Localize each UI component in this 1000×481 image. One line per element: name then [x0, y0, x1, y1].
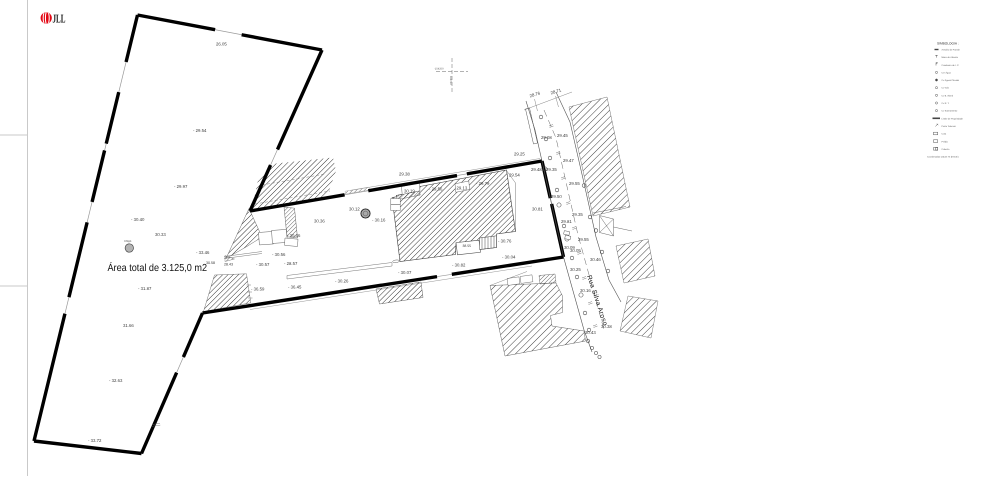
- svg-text:Cv Águas Pluviais: Cv Águas Pluviais: [942, 79, 961, 82]
- svg-text:29.13: 29.13: [457, 186, 468, 191]
- svg-text:- 30.26: - 30.26: [335, 279, 349, 284]
- svg-text:Limite de Propriedade: Limite de Propriedade: [942, 117, 964, 120]
- svg-text:29.35: 29.35: [546, 167, 557, 172]
- svg-text:30.58: 30.58: [206, 261, 215, 265]
- svg-text:30.81: 30.81: [532, 207, 543, 212]
- svg-text:- 30.16: - 30.16: [372, 218, 386, 223]
- svg-text:- 36.59: - 36.59: [251, 287, 265, 292]
- svg-text:-154250: -154250: [434, 68, 444, 71]
- svg-text:29.47: 29.47: [563, 158, 574, 163]
- svg-text:Poço: Poço: [125, 239, 132, 243]
- svg-text:29.48: 29.48: [531, 167, 542, 172]
- svg-text:CV. Água: CV. Água: [942, 71, 952, 74]
- svg-text:- 32.63: - 32.63: [109, 378, 123, 383]
- svg-text:Coberto: Coberto: [942, 148, 951, 151]
- svg-text:- 30.56: - 30.56: [272, 252, 286, 257]
- svg-text:38.55: 38.55: [463, 244, 472, 248]
- svg-text:- 33.46: - 33.46: [196, 250, 210, 255]
- svg-text:30.16: 30.16: [580, 288, 591, 293]
- svg-text:168750: 168750: [449, 76, 452, 85]
- svg-text:30.43: 30.43: [585, 330, 596, 335]
- svg-text:- 36.45: - 36.45: [288, 285, 302, 290]
- svg-text:Coordenadas Datum 73 (IGeoE): Coordenadas Datum 73 (IGeoE): [927, 156, 959, 159]
- svg-text:Candeeiro de I. P.: Candeeiro de I. P.: [942, 64, 960, 67]
- svg-text:31.66: 31.66: [123, 323, 134, 328]
- svg-text:- 30.57: - 30.57: [256, 262, 270, 267]
- svg-text:- 29.97: - 29.97: [174, 184, 188, 189]
- svg-text:- 28.57: - 28.57: [284, 261, 298, 266]
- svg-text:Cota: Cota: [942, 133, 947, 136]
- svg-text:29.54: 29.54: [509, 173, 520, 178]
- svg-text:Cv B. Aberti: Cv B. Aberti: [942, 94, 954, 97]
- svg-text:30.46: 30.46: [590, 257, 601, 262]
- svg-text:30.36: 30.36: [314, 219, 325, 224]
- svg-text:- 30.07: - 30.07: [398, 270, 412, 275]
- svg-text:- 30.46: - 30.46: [287, 233, 301, 238]
- svg-text:30.05: 30.05: [570, 248, 581, 253]
- svg-text:29.81: 29.81: [561, 219, 572, 224]
- svg-text:Armário de Parede: Armário de Parede: [942, 49, 961, 52]
- svg-text:30.25: 30.25: [570, 267, 581, 272]
- svg-text:- 30.82: - 30.82: [452, 263, 466, 268]
- svg-text:Móco de Arbusto: Móco de Arbusto: [942, 56, 959, 59]
- svg-text:- 30.76: - 30.76: [498, 239, 512, 244]
- svg-text:JLL: JLL: [53, 12, 66, 26]
- svg-text:Prédio: Prédio: [942, 140, 949, 143]
- svg-text:- 30.04: - 30.04: [502, 255, 516, 260]
- svg-text:28.43: 28.43: [224, 263, 233, 267]
- svg-text:30.19: 30.19: [404, 189, 415, 194]
- svg-text:30.12: 30.12: [349, 207, 360, 212]
- svg-text:Cv Gás: Cv Gás: [942, 87, 950, 90]
- svg-text:- 31.87: - 31.87: [138, 286, 152, 291]
- svg-text:Poste Telecom: Poste Telecom: [942, 125, 956, 128]
- svg-text:26.05: 26.05: [216, 42, 227, 47]
- svg-text:29.38: 29.38: [399, 172, 410, 177]
- svg-text:- 33.72: - 33.72: [88, 438, 102, 443]
- svg-text:29.55: 29.55: [569, 181, 580, 186]
- svg-text:29.55: 29.55: [578, 237, 589, 242]
- svg-text:29.08: 29.08: [541, 135, 552, 140]
- svg-text:30.38: 30.38: [601, 324, 612, 329]
- svg-text:30.33: 30.33: [155, 232, 166, 237]
- svg-text:Cv Saneamento: Cv Saneamento: [942, 110, 958, 113]
- svg-text:- 30.40: - 30.40: [131, 217, 145, 222]
- svg-text:Cv R. T.: Cv R. T.: [942, 102, 950, 105]
- svg-text:29.25: 29.25: [514, 152, 525, 157]
- svg-text:Área total de 3.125,0 m2: Área total de 3.125,0 m2: [108, 262, 208, 274]
- svg-text:- 29.79: - 29.79: [476, 181, 490, 186]
- svg-text:- 29.56: - 29.56: [429, 187, 443, 192]
- svg-text:29.45: 29.45: [557, 133, 568, 138]
- svg-text:29.35: 29.35: [572, 212, 583, 217]
- svg-text:SIMBOLOGIA :: SIMBOLOGIA :: [937, 42, 959, 46]
- svg-text:- 29.54: - 29.54: [193, 128, 207, 133]
- svg-text:29.50: 29.50: [551, 194, 562, 199]
